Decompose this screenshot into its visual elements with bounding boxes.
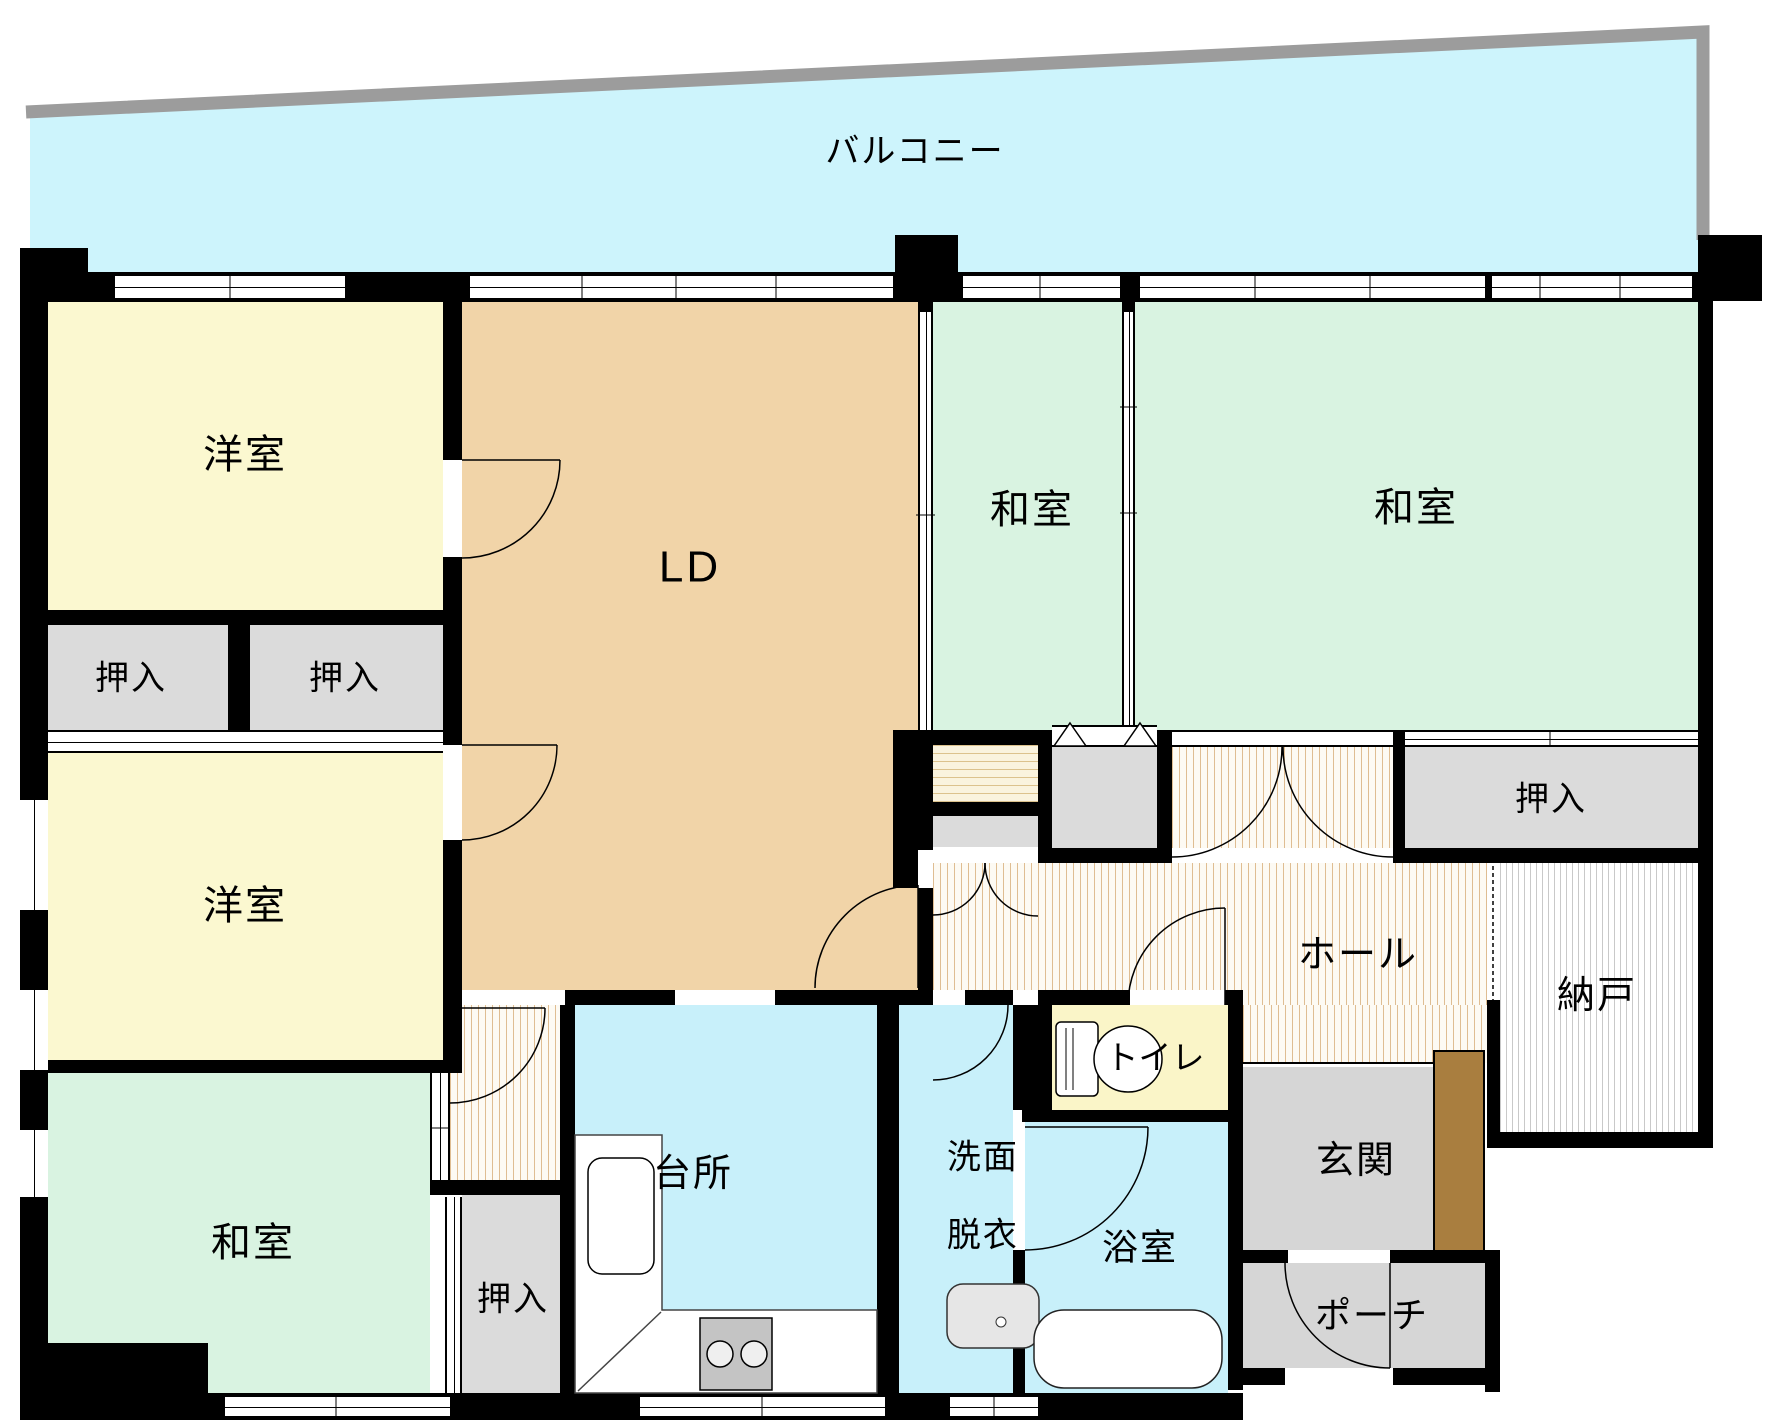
storage-gray-box [933, 816, 1038, 847]
wall-segment [775, 990, 905, 1005]
window [20, 1130, 48, 1197]
wall-segment [443, 840, 462, 1060]
wall-segment [895, 235, 958, 302]
label-bath: 浴室 [1102, 1226, 1178, 1267]
wall-segment [430, 1180, 565, 1195]
wall-segment [1393, 730, 1405, 848]
sliding-door [918, 312, 933, 730]
wall-segment [48, 1343, 208, 1403]
label-washroom-line2: 脱衣 [947, 1217, 1019, 1255]
hall-main [1038, 863, 1487, 1005]
wall-segment [1038, 1005, 1052, 1110]
label-kitchen: 台所 [653, 1153, 733, 1197]
door-opening [1130, 990, 1225, 1005]
label-western1: 洋室 [203, 432, 287, 478]
sliding-door [1122, 312, 1135, 730]
closet-door-band [1052, 725, 1157, 747]
wall-segment [1228, 990, 1243, 1390]
window [20, 990, 48, 1070]
wall-segment [1487, 1000, 1500, 1148]
label-washroom: 洗面 脱衣 [901, 1099, 1019, 1294]
corridor-mid [933, 863, 1038, 990]
window [20, 800, 48, 910]
window [1140, 276, 1485, 298]
window [470, 276, 893, 298]
wall-segment [1698, 235, 1762, 301]
wall-segment [443, 557, 462, 610]
wall-segment [918, 302, 933, 312]
door-opening [1288, 1250, 1390, 1263]
window [640, 1397, 885, 1416]
label-nando: 納戸 [1557, 975, 1637, 1019]
floor-plan: バルコニー 洋室 押入 押入 洋室 和室 LD 和室 和室 押入 納戸 ホール … [0, 0, 1785, 1425]
door-opening [933, 848, 1038, 863]
hall-door-bay [1172, 747, 1393, 848]
label-toilet: トイレ [1106, 1039, 1205, 1077]
wall-segment [1393, 848, 1698, 863]
door-opening [443, 745, 462, 840]
wall-segment [565, 990, 675, 1005]
label-washroom-line1: 洗面 [947, 1138, 1019, 1176]
door-opening [443, 460, 462, 557]
shoe-cabinet [1433, 1050, 1485, 1260]
sliding-door [445, 1197, 462, 1393]
label-washitsu-bl: 和室 [211, 1220, 295, 1266]
sliding-door [1405, 730, 1698, 747]
wall-segment [877, 1005, 899, 1395]
label-ld: LD [659, 543, 721, 594]
closet-door-band [1172, 730, 1393, 747]
window [963, 276, 1120, 298]
label-porch: ポーチ [1315, 1294, 1429, 1335]
label-washitsu-mid: 和室 [990, 487, 1074, 533]
wall-segment [1698, 298, 1713, 1148]
wall-segment [20, 610, 443, 625]
label-balcony: バルコニー [825, 132, 1004, 171]
wall-segment [1022, 1110, 1243, 1122]
wall-segment [1122, 302, 1135, 312]
window [115, 276, 345, 298]
wall-segment [443, 272, 462, 460]
window [950, 1397, 1038, 1416]
wall-segment [1487, 1132, 1713, 1148]
wall-segment [1013, 1005, 1038, 1110]
label-washitsu-right: 和室 [1374, 485, 1458, 531]
label-closet-bottom: 押入 [477, 1280, 549, 1319]
label-closet-l2: 押入 [309, 659, 381, 698]
sliding-door [48, 730, 443, 753]
room-kitchen [575, 1005, 877, 1393]
wall-segment [933, 802, 1052, 816]
window [1492, 276, 1692, 298]
label-genkan: 玄関 [1316, 1140, 1396, 1184]
wall-segment [1038, 848, 1172, 863]
wall-segment [1038, 730, 1052, 863]
wall-segment [1157, 730, 1172, 863]
label-closet-l1: 押入 [95, 659, 167, 698]
label-western2: 洋室 [203, 883, 287, 929]
wall-segment [918, 730, 933, 850]
wall-segment [443, 610, 462, 745]
wall-segment [228, 625, 250, 730]
wall-segment [893, 730, 918, 888]
storage-counter [933, 745, 1038, 802]
label-hall: ホール [1298, 934, 1418, 978]
wall-segment [933, 730, 1052, 745]
sliding-door [430, 1073, 450, 1180]
window [225, 1397, 450, 1416]
label-closet-right: 押入 [1515, 780, 1587, 819]
door-opening [1285, 1368, 1393, 1385]
wall-segment [560, 1005, 575, 1395]
wall-segment [20, 1060, 462, 1073]
closet-mid [1052, 747, 1157, 848]
corridor-west [450, 1005, 560, 1180]
room-ld-bulge [893, 888, 918, 990]
door-opening [675, 990, 775, 1005]
room-ld [462, 302, 918, 990]
wall-segment [918, 888, 933, 1005]
door-opening [933, 990, 965, 1005]
